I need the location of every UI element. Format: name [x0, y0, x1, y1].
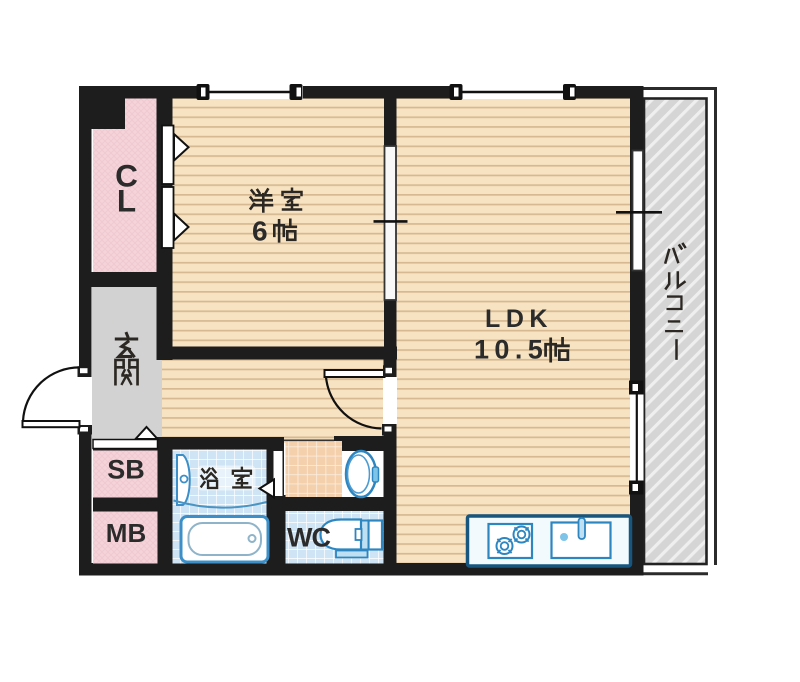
svg-text:MB: MB: [106, 518, 146, 548]
svg-text:SB: SB: [107, 454, 145, 484]
svg-text:10.5: 10.5: [474, 334, 548, 364]
svg-text:L: L: [117, 183, 136, 219]
svg-text:LDK: LDK: [485, 305, 553, 333]
svg-text:6: 6: [252, 215, 268, 246]
svg-text:WC: WC: [287, 523, 330, 553]
